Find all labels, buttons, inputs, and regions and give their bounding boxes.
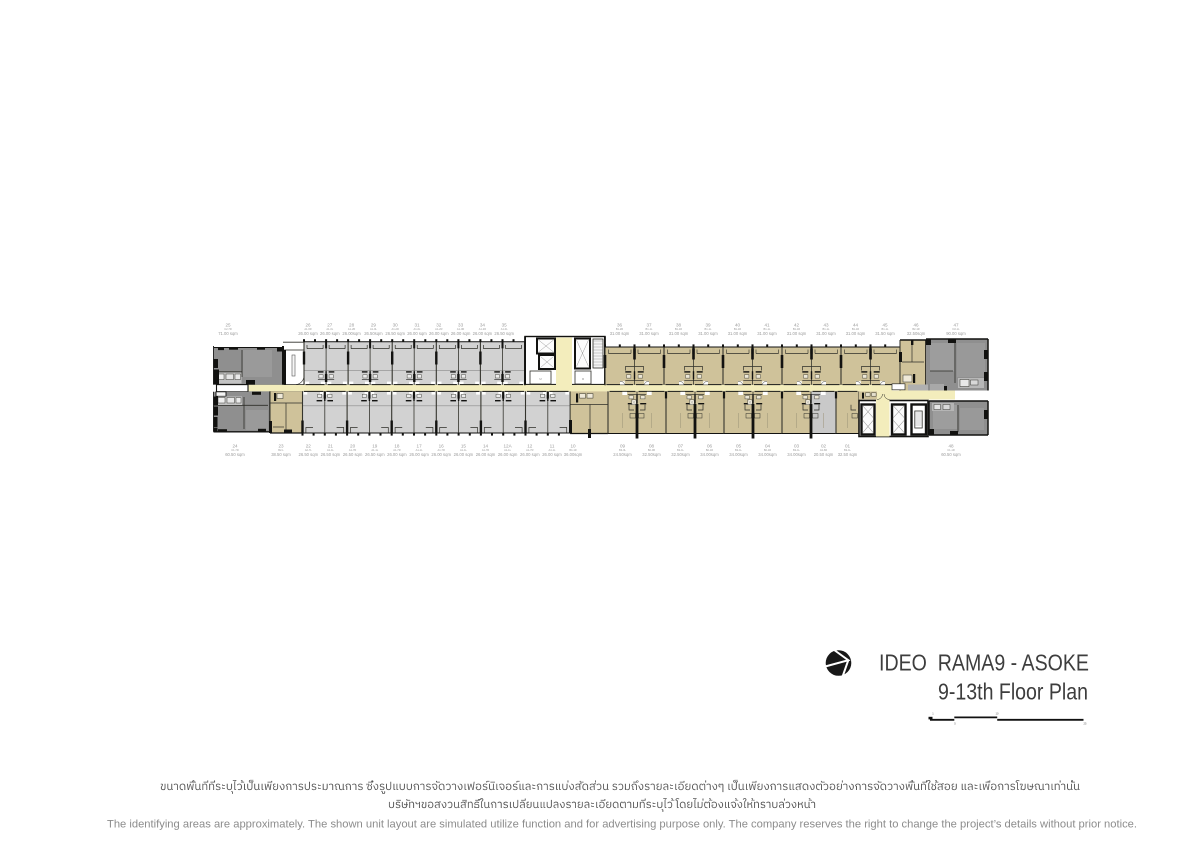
svg-text:31.00 sqm: 31.00 sqm bbox=[816, 331, 836, 336]
svg-text:12A: 12A bbox=[504, 443, 513, 448]
svg-text:32: 32 bbox=[436, 322, 442, 327]
svg-text:26.50 sqm: 26.50 sqm bbox=[385, 331, 405, 336]
svg-text:31.00 sqm: 31.00 sqm bbox=[757, 331, 777, 336]
svg-text:44: 44 bbox=[853, 322, 859, 327]
svg-text:27: 27 bbox=[327, 322, 333, 327]
svg-text:19: 19 bbox=[372, 443, 378, 448]
svg-text:42: 42 bbox=[794, 322, 800, 327]
svg-text:31: 31 bbox=[414, 322, 420, 327]
svg-text:26.00 sqm: 26.00 sqm bbox=[520, 452, 540, 457]
svg-text:30: 30 bbox=[393, 322, 399, 327]
svg-text:20: 20 bbox=[350, 443, 356, 448]
svg-text:10: 10 bbox=[570, 443, 576, 448]
svg-text:34.00sqm: 34.00sqm bbox=[729, 452, 748, 457]
svg-text:60.50 sqm: 60.50 sqm bbox=[225, 452, 245, 457]
svg-text:26.00 sqm: 26.00 sqm bbox=[542, 452, 562, 457]
svg-text:34.00sqm: 34.00sqm bbox=[787, 452, 806, 457]
svg-text:09: 09 bbox=[620, 443, 626, 448]
svg-text:22: 22 bbox=[306, 443, 312, 448]
svg-text:24: 24 bbox=[232, 443, 238, 448]
svg-text:15: 15 bbox=[461, 443, 467, 448]
svg-text:21: 21 bbox=[328, 443, 334, 448]
svg-text:26.00 sqm: 26.00 sqm bbox=[387, 452, 407, 457]
svg-text:26: 26 bbox=[305, 322, 311, 327]
svg-text:34.00sqm: 34.00sqm bbox=[700, 452, 719, 457]
svg-text:17: 17 bbox=[417, 443, 423, 448]
svg-text:33: 33 bbox=[458, 322, 464, 327]
svg-text:90.00 sqm: 90.00 sqm bbox=[946, 331, 966, 336]
svg-text:IDEO RAMA9 - ASOKE: IDEO RAMA9 - ASOKE bbox=[879, 650, 1089, 676]
svg-text:60.50 sqm: 60.50 sqm bbox=[941, 452, 961, 457]
svg-text:26.50sqm: 26.50sqm bbox=[364, 331, 383, 336]
svg-text:23: 23 bbox=[278, 443, 284, 448]
svg-text:14: 14 bbox=[483, 443, 489, 448]
svg-text:26.00sqm: 26.00sqm bbox=[342, 331, 361, 336]
svg-text:34: 34 bbox=[480, 322, 486, 327]
svg-text:16: 16 bbox=[439, 443, 445, 448]
svg-text:26.00 sqm: 26.00 sqm bbox=[476, 452, 496, 457]
svg-text:26.00 sqm: 26.00 sqm bbox=[431, 452, 451, 457]
svg-text:48: 48 bbox=[948, 443, 954, 448]
svg-text:26.00 sqm: 26.00 sqm bbox=[498, 452, 518, 457]
svg-text:26.00 sqm: 26.00 sqm bbox=[451, 331, 471, 336]
svg-text:39: 39 bbox=[705, 322, 711, 327]
svg-text:25: 25 bbox=[225, 322, 231, 327]
svg-text:31.00 sqm: 31.00 sqm bbox=[787, 331, 807, 336]
svg-text:38.50 sqm: 38.50 sqm bbox=[271, 452, 291, 457]
svg-text:28: 28 bbox=[349, 322, 355, 327]
svg-text:31.00 sqm: 31.00 sqm bbox=[639, 331, 659, 336]
svg-text:31.00 sqm: 31.00 sqm bbox=[610, 331, 630, 336]
svg-text:26.00 sqm: 26.00 sqm bbox=[473, 331, 493, 336]
svg-text:37: 37 bbox=[646, 322, 652, 327]
svg-text:32.50 sqm: 32.50 sqm bbox=[838, 452, 858, 457]
svg-text:04: 04 bbox=[765, 443, 771, 448]
svg-text:35: 35 bbox=[502, 322, 508, 327]
svg-text:9-13th Floor Plan: 9-13th Floor Plan bbox=[938, 679, 1088, 705]
svg-text:31.00 sqm: 31.00 sqm bbox=[846, 331, 866, 336]
svg-text:26.00 sqm: 26.00 sqm bbox=[407, 331, 427, 336]
svg-text:26.00 sqm: 26.00 sqm bbox=[298, 331, 318, 336]
svg-text:71.00 sqm: 71.00 sqm bbox=[218, 331, 238, 336]
svg-text:45: 45 bbox=[882, 322, 888, 327]
svg-text:The identifying areas are appr: The identifying areas are approximately.… bbox=[107, 819, 1137, 831]
svg-text:46: 46 bbox=[913, 322, 919, 327]
svg-text:03: 03 bbox=[794, 443, 800, 448]
svg-text:26.00 sqm: 26.00 sqm bbox=[320, 331, 340, 336]
svg-text:31.00 sqm: 31.00 sqm bbox=[698, 331, 718, 336]
svg-text:05: 05 bbox=[736, 443, 742, 448]
svg-text:31.00 sqm: 31.00 sqm bbox=[669, 331, 689, 336]
svg-text:18: 18 bbox=[394, 443, 400, 448]
svg-text:38: 38 bbox=[676, 322, 682, 327]
svg-text:26.00 sqm: 26.00 sqm bbox=[454, 452, 474, 457]
svg-text:26.00 sqm: 26.00 sqm bbox=[409, 452, 429, 457]
svg-text:20.50 sqm: 20.50 sqm bbox=[814, 452, 834, 457]
svg-text:32.50sqm: 32.50sqm bbox=[642, 452, 661, 457]
svg-text:02: 02 bbox=[821, 443, 827, 448]
svg-text:31.00 sqm: 31.00 sqm bbox=[728, 331, 748, 336]
svg-text:40: 40 bbox=[735, 322, 741, 327]
svg-text:08: 08 bbox=[649, 443, 655, 448]
svg-text:41: 41 bbox=[764, 322, 770, 327]
svg-text:47: 47 bbox=[953, 322, 959, 327]
svg-text:01: 01 bbox=[845, 443, 851, 448]
svg-text:34.00sqm: 34.00sqm bbox=[758, 452, 777, 457]
svg-text:36: 36 bbox=[617, 322, 623, 327]
svg-text:26.00 sqm: 26.00 sqm bbox=[429, 331, 449, 336]
svg-text:06: 06 bbox=[707, 443, 713, 448]
svg-text:26.50 sqm: 26.50 sqm bbox=[343, 452, 363, 457]
svg-text:26.50 sqm: 26.50 sqm bbox=[494, 331, 514, 336]
svg-text:26.50 sqm: 26.50 sqm bbox=[299, 452, 319, 457]
svg-text:32.50sqm: 32.50sqm bbox=[671, 452, 690, 457]
svg-text:12: 12 bbox=[527, 443, 533, 448]
svg-text:24.50sqm: 24.50sqm bbox=[613, 452, 632, 457]
svg-text:11: 11 bbox=[550, 443, 555, 448]
svg-text:31.50 sqm: 31.50 sqm bbox=[875, 331, 895, 336]
svg-text:26.50 sqm: 26.50 sqm bbox=[321, 452, 341, 457]
svg-text:29: 29 bbox=[371, 322, 377, 327]
svg-text:32.50sqm: 32.50sqm bbox=[907, 331, 926, 336]
svg-text:07: 07 bbox=[678, 443, 684, 448]
svg-text:26.50 sqm: 26.50 sqm bbox=[365, 452, 385, 457]
svg-text:36.00sqm: 36.00sqm bbox=[564, 452, 583, 457]
svg-text:43: 43 bbox=[823, 322, 829, 327]
